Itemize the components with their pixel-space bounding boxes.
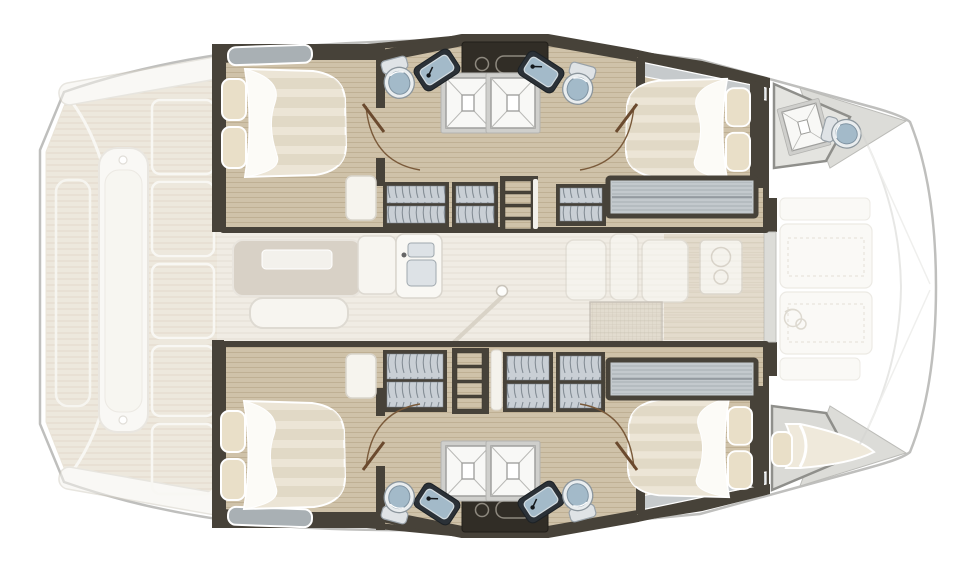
- wardrobe-locker: [507, 384, 549, 408]
- stair-side-panel: [491, 350, 502, 410]
- port-partition-aft-upper: [376, 44, 385, 108]
- galley-faucet: [402, 253, 407, 258]
- stbd-cabin-cabinet: [346, 354, 376, 398]
- floor-plan-page: [0, 0, 960, 571]
- wardrobe-locker: [387, 186, 445, 203]
- bow-berth-pillow: [772, 432, 792, 466]
- forward-galley-units: [566, 234, 764, 346]
- foredeck-locker-panel-1: [780, 224, 872, 288]
- wardrobe-locker: [456, 186, 494, 203]
- foredeck-strip-bottom: [780, 358, 860, 380]
- dinette-table-leaf: [262, 250, 332, 269]
- wardrobe-locker: [387, 206, 445, 223]
- bench-seat: [250, 298, 348, 328]
- wardrobe-locker: [456, 206, 494, 223]
- port-staircase: [500, 176, 538, 232]
- sink-basin-large: [407, 260, 436, 286]
- dinette: [233, 240, 361, 328]
- foredeck-locker-panel-2: [780, 292, 872, 354]
- ghost-cabinet-1: [566, 240, 606, 300]
- wardrobe-locker: [560, 206, 602, 221]
- port-aft-cabin-window: [228, 45, 313, 66]
- wardrobe-locker: [560, 188, 602, 203]
- cooktop: [700, 240, 742, 294]
- port-fwd-headboard-wall: [750, 80, 764, 188]
- catamaran-floor-plan: [0, 0, 960, 571]
- stbd-staircase: [452, 348, 489, 414]
- galley-counter: [358, 236, 396, 294]
- wardrobe-locker: [387, 382, 443, 407]
- port-cabin-cabinet: [346, 176, 376, 220]
- sink-basin-small: [408, 243, 434, 257]
- galley: [358, 234, 442, 298]
- wardrobe-locker: [507, 356, 549, 380]
- forward-window-wall: [764, 232, 776, 342]
- stbd-hull-window-band: [608, 360, 756, 398]
- port-hull-window-band: [608, 178, 756, 216]
- support-pole: [497, 286, 508, 297]
- ghost-cabinet-2: [610, 234, 638, 300]
- wardrobe-locker: [560, 356, 601, 380]
- cockpit-bench: [99, 148, 148, 432]
- port-partition-aft-lower: [376, 158, 385, 186]
- stbd-aft-cabin-window: [228, 507, 313, 528]
- wardrobe-locker: [387, 354, 443, 379]
- vent-hatch: [590, 302, 662, 346]
- ghost-cabinet-3: [642, 240, 688, 302]
- foredeck-strip-top: [780, 198, 870, 220]
